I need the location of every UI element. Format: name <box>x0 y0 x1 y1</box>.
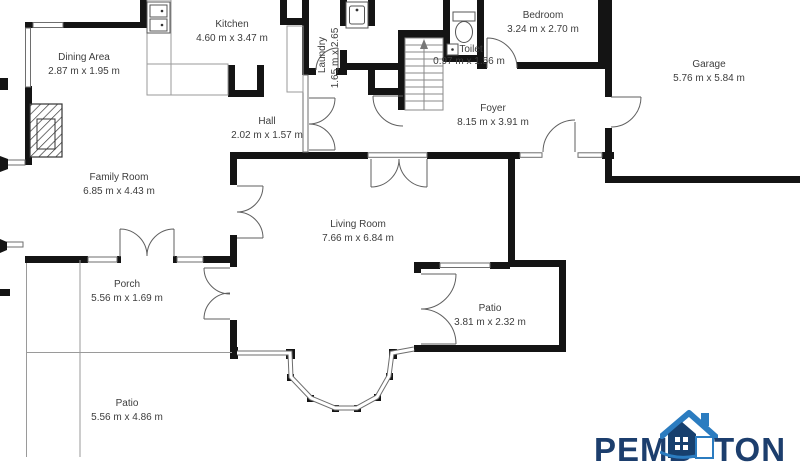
logo-text-right: TON <box>714 433 786 466</box>
svg-text:Patio: Patio <box>479 303 502 314</box>
svg-text:6.85 m x 4.43 m: 6.85 m x 4.43 m <box>83 186 155 197</box>
room-label-living-room: Living Room 7.66 m x 6.84 m <box>322 219 394 244</box>
svg-text:Hall: Hall <box>258 116 275 127</box>
svg-text:2.87 m x 1.95 m: 2.87 m x 1.95 m <box>48 66 120 77</box>
svg-text:Porch: Porch <box>114 279 140 290</box>
laundry-sink-icon <box>346 2 368 28</box>
svg-text:5.76 m x 5.84 m: 5.76 m x 5.84 m <box>673 73 745 84</box>
svg-text:5.56 m x 1.69 m: 5.56 m x 1.69 m <box>91 293 163 304</box>
room-label-kitchen: Kitchen 4.60 m x 3.47 m <box>196 19 268 44</box>
floorplan-page: { "floorplan": { "rooms": [ {"name":"Kit… <box>0 0 800 457</box>
room-labels: Kitchen 4.60 m x 3.47 m Laundry 1.65 m x… <box>48 10 745 423</box>
svg-text:Garage: Garage <box>692 59 726 70</box>
brand-logo: PEMB TON <box>588 404 800 464</box>
svg-text:Toilet: Toilet <box>459 44 483 55</box>
bay-window <box>237 349 414 408</box>
svg-text:8.15 m x 3.91 m: 8.15 m x 3.91 m <box>457 117 529 128</box>
stove-icon <box>147 2 170 33</box>
svg-text:2.02 m x 1.57 m: 2.02 m x 1.57 m <box>231 130 303 141</box>
svg-text:3.81 m x 2.32 m: 3.81 m x 2.32 m <box>454 317 526 328</box>
svg-text:Bedroom: Bedroom <box>523 10 564 21</box>
room-label-porch: Porch 5.56 m x 1.69 m <box>91 279 163 304</box>
room-label-hall: Hall 2.02 m x 1.57 m <box>231 116 303 141</box>
svg-text:Dining Area: Dining Area <box>58 52 110 63</box>
room-label-bedroom: Bedroom 3.24 m x 2.70 m <box>507 10 579 35</box>
stairs-icon <box>405 38 443 110</box>
svg-text:Kitchen: Kitchen <box>215 19 248 30</box>
svg-text:Foyer: Foyer <box>480 103 506 114</box>
room-label-garage: Garage 5.76 m x 5.84 m <box>673 59 745 84</box>
svg-text:Living Room: Living Room <box>330 219 386 230</box>
room-label-foyer: Foyer 8.15 m x 3.91 m <box>457 103 529 128</box>
svg-text:7.66 m x 6.84 m: 7.66 m x 6.84 m <box>322 233 394 244</box>
svg-text:5.56 m x 4.86 m: 5.56 m x 4.86 m <box>91 412 163 423</box>
floor-plan-canvas: Kitchen 4.60 m x 3.47 m Laundry 1.65 m x… <box>0 0 800 457</box>
svg-text:Patio: Patio <box>116 398 139 409</box>
room-label-laundry: Laundry 1.65 m x 2.65 <box>317 27 341 88</box>
room-label-dining-area: Dining Area 2.87 m x 1.95 m <box>48 52 120 77</box>
svg-text:Family Room: Family Room <box>90 172 149 183</box>
svg-text:Laundry: Laundry <box>317 37 328 73</box>
room-label-patio-small: Patio 3.81 m x 2.32 m <box>454 303 526 328</box>
house-logo-icon <box>660 406 718 460</box>
svg-text:4.60 m x 3.47 m: 4.60 m x 3.47 m <box>196 33 268 44</box>
room-label-family-room: Family Room 6.85 m x 4.43 m <box>83 172 155 197</box>
svg-text:0.97 m x 1.56 m: 0.97 m x 1.56 m <box>433 56 505 67</box>
svg-text:1.65 m x 2.65: 1.65 m x 2.65 <box>330 27 341 88</box>
room-label-patio-large: Patio 5.56 m x 4.86 m <box>91 398 163 423</box>
svg-text:3.24 m x 2.70 m: 3.24 m x 2.70 m <box>507 24 579 35</box>
fireplace-icon <box>30 104 62 157</box>
